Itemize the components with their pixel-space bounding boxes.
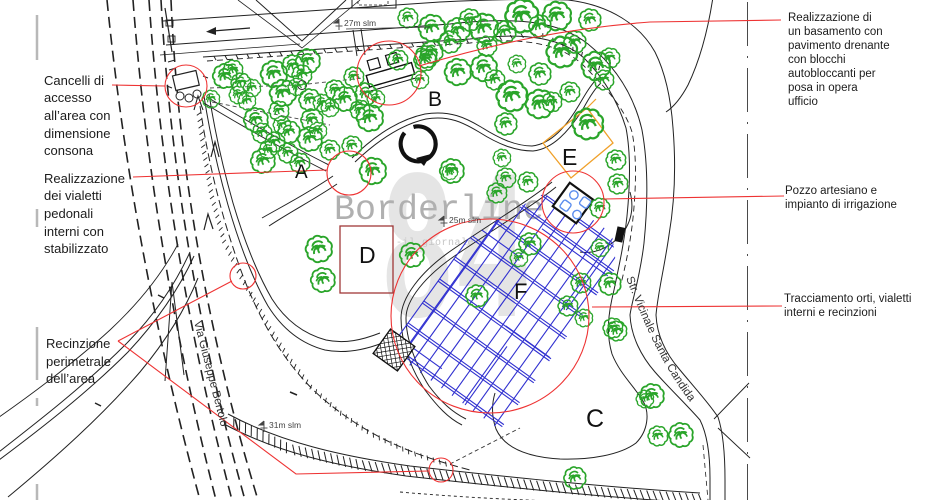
svg-text:27m slm: 27m slm [344, 18, 376, 28]
svg-text:Recinzione: Recinzione [46, 336, 110, 351]
svg-text:dei vialetti: dei vialetti [44, 188, 102, 203]
svg-text:posa in opera: posa in opera [788, 82, 858, 94]
svg-text:Realizzazione: Realizzazione [44, 171, 125, 186]
svg-text:31m slm: 31m slm [269, 420, 301, 430]
svg-text:perimetrale: perimetrale [46, 354, 111, 369]
svg-text:Tracciamento orti, vialetti: Tracciamento orti, vialetti [784, 293, 911, 305]
svg-text:pedonali: pedonali [44, 206, 93, 221]
svg-text:impianto di irrigazione: impianto di irrigazione [785, 199, 897, 211]
svg-text:E: E [562, 144, 577, 170]
svg-text:all’area con: all’area con [44, 108, 111, 123]
svg-text:25m slm: 25m slm [449, 215, 481, 225]
svg-text:autobloccanti per: autobloccanti per [788, 68, 876, 80]
svg-text:stabilizzato: stabilizzato [44, 241, 108, 256]
svg-text:pavimento drenante: pavimento drenante [788, 40, 890, 52]
svg-text:accesso: accesso [44, 90, 92, 105]
svg-text:F: F [514, 279, 527, 304]
svg-text:Realizzazione di: Realizzazione di [788, 12, 872, 24]
svg-text:ufficio: ufficio [788, 96, 818, 108]
svg-text:B: B [428, 88, 442, 111]
svg-text:un basamento con: un basamento con [788, 26, 883, 38]
svg-text:consona: consona [44, 143, 94, 158]
svg-text:dell’area: dell’area [46, 371, 96, 386]
svg-text:C: C [586, 405, 604, 433]
svg-text:Cancelli di: Cancelli di [44, 73, 104, 88]
svg-text:interni e recinzioni: interni e recinzioni [784, 307, 877, 319]
svg-text:Pozzo artesiano e: Pozzo artesiano e [785, 185, 877, 197]
svg-text:interni con: interni con [44, 224, 104, 239]
svg-text:dimensione: dimensione [44, 126, 111, 141]
svg-text:D: D [359, 242, 376, 268]
svg-text:A: A [295, 162, 308, 183]
svg-text:con blocchi: con blocchi [788, 54, 846, 66]
